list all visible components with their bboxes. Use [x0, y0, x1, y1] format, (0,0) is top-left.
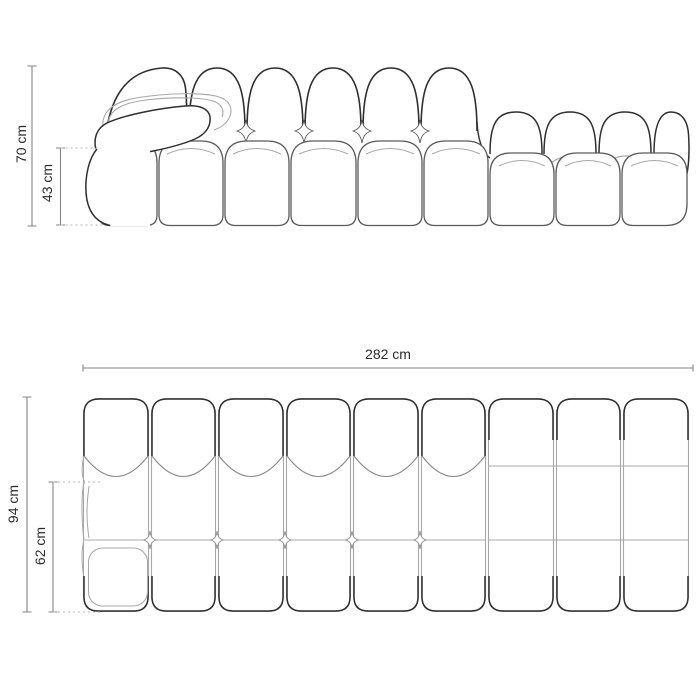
backrest-module [247, 68, 303, 131]
seat-module [622, 153, 687, 226]
plan-module-columns [84, 399, 689, 612]
plan-column [152, 399, 216, 612]
plan-column [219, 399, 284, 612]
backrest-module [421, 68, 477, 131]
seat-module [556, 153, 620, 226]
seat-modules [99, 141, 488, 226]
plan-column [422, 399, 486, 612]
seat-depth-label: 62 cm [32, 516, 48, 576]
overall-depth-label: 94 cm [5, 474, 21, 534]
drawing-canvas [0, 0, 700, 700]
sofa-dimension-diagram: 70 cm 43 cm 282 cm 94 cm 62 cm [0, 0, 700, 700]
plan-column [557, 399, 621, 612]
plan-column [287, 399, 351, 612]
depth-dimension-94 [23, 397, 32, 612]
plan-column [84, 399, 149, 612]
plan-column [354, 399, 419, 612]
overall-width-label: 282 cm [358, 346, 418, 362]
width-dimension-282 [83, 365, 693, 372]
backrest-module [305, 68, 361, 131]
front-elevation-view [28, 66, 689, 226]
backrest-module [363, 68, 419, 131]
seat-height-label: 43 cm [39, 153, 55, 213]
plan-view [23, 365, 694, 613]
plan-column [489, 399, 554, 612]
chaise-back-module [490, 112, 542, 154]
seat-module [490, 153, 554, 226]
overall-height-label: 70 cm [13, 114, 29, 174]
plan-column [624, 399, 689, 612]
chaise-back-module [599, 112, 651, 154]
chaise-seat-modules [490, 153, 687, 226]
chaise-back-module [544, 112, 596, 154]
armrest-front-fill [86, 148, 150, 226]
